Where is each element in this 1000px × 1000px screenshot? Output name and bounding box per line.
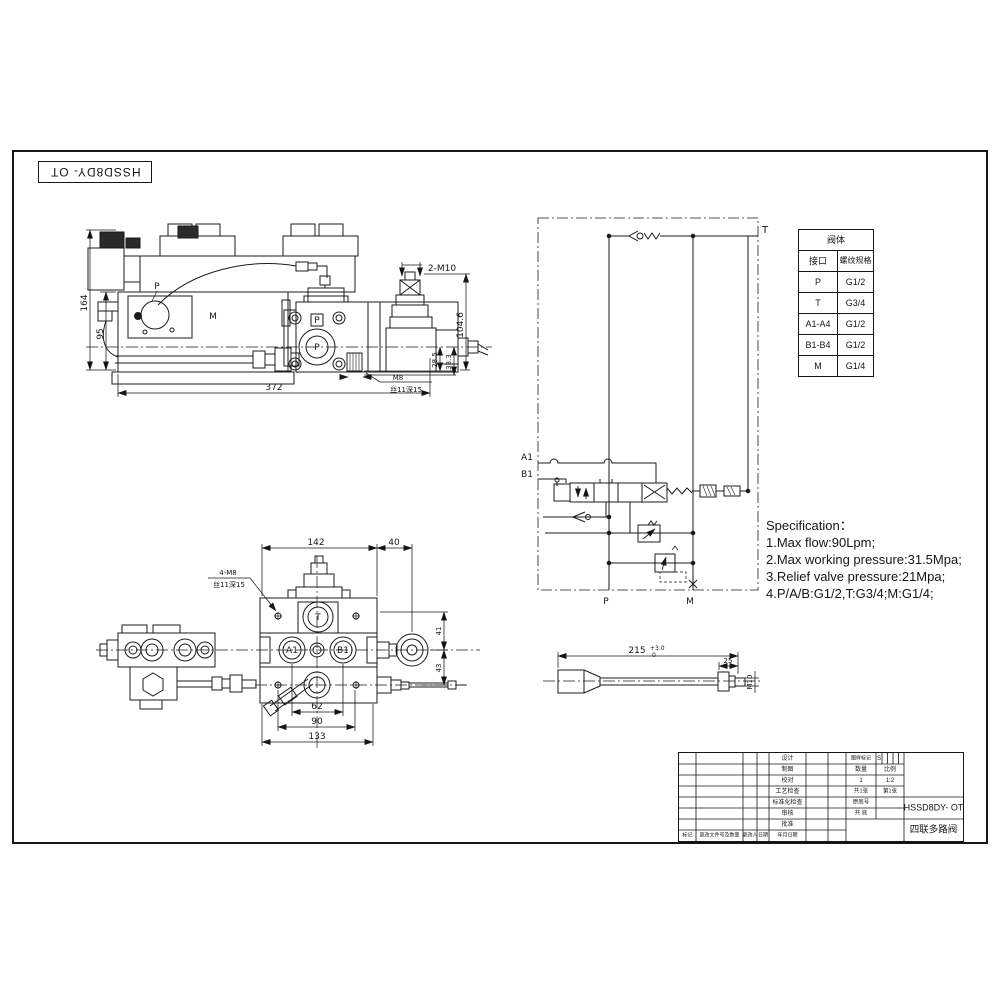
thread-table-header: 接口 螺纹规格 — [799, 250, 873, 271]
table-row: M G1/4 — [799, 355, 873, 376]
tb-scale-label: 比例 — [884, 767, 896, 773]
drawing-canvas: 164 95 372 104.6 28.5 33.3 2-M10 M8 丝11深… — [0, 0, 1000, 1000]
svg-text:2-M10: 2-M10 — [428, 264, 456, 274]
port-cell: B1-B4 — [799, 335, 838, 355]
tb-sheet-index: 第1张 — [883, 789, 897, 795]
spec-cell: G1/2 — [838, 314, 873, 334]
tb-label-approve: 批准 — [781, 822, 793, 828]
side-view-labels: 164 95 372 104.6 28.5 33.3 2-M10 M8 丝11深… — [80, 264, 466, 394]
table-row: B1-B4 G1/2 — [799, 334, 873, 355]
tb-label-mark: 标记 — [682, 833, 692, 838]
tb-orig-label: 原底号 — [853, 800, 870, 806]
tb-scale-value: 1:2 — [886, 778, 894, 784]
svg-text:104.6: 104.6 — [456, 312, 466, 338]
title-block: 设计 制图 校对 工艺检查 标准化检查 审核 批准 标记 更改文件号及数量 更改… — [678, 752, 964, 842]
svg-text:P: P — [314, 316, 320, 326]
svg-text:215: 215 — [628, 646, 645, 656]
svg-text:P: P — [603, 597, 609, 607]
svg-text:95: 95 — [96, 328, 106, 339]
svg-text:P: P — [314, 343, 320, 353]
tb-label-check: 校对 — [781, 778, 793, 784]
tb-label-standard: 标准化检查 — [772, 800, 802, 806]
tb-label-changer: 更改人 — [742, 833, 757, 838]
svg-text:T: T — [761, 225, 769, 236]
col-port-header: 接口 — [799, 251, 838, 271]
svg-text:M: M — [209, 312, 217, 322]
svg-text:142: 142 — [307, 538, 324, 548]
port-cell: A1-A4 — [799, 314, 838, 334]
spec-cell: G3/4 — [838, 293, 873, 313]
tb-part-number: HSSD8DY- OT — [904, 804, 964, 813]
spec-cell: G1/4 — [838, 356, 873, 376]
spec-title: Specification： — [766, 517, 992, 534]
tb-label-review: 审核 — [781, 811, 793, 817]
schematic-port-labels: T A1 B1 P M — [521, 225, 769, 607]
tb-sheets-total: 共1张 — [854, 789, 868, 795]
spec-line: 3.Relief valve pressure:21Mpa; — [766, 568, 992, 585]
tb-label-date: 日期 — [758, 833, 768, 838]
spec-line: 2.Max working pressure:31.5Mpa; — [766, 551, 992, 568]
tb-part-name: 四联多路阀 — [910, 825, 958, 835]
svg-text:4-M8: 4-M8 — [219, 569, 236, 577]
table-row: A1-A4 G1/2 — [799, 313, 873, 334]
svg-text:M8: M8 — [393, 374, 404, 382]
svg-text:丝11深15: 丝11深15 — [390, 385, 422, 394]
svg-text:90: 90 — [311, 717, 323, 727]
port-cell: M — [799, 356, 838, 376]
port-cell: P — [799, 272, 838, 292]
svg-text:133: 133 — [308, 732, 325, 742]
tb-label-process: 工艺检查 — [775, 789, 799, 795]
tb-label-change: 更改文件号及数量 — [699, 833, 739, 838]
hydraulic-schematic — [538, 218, 758, 590]
svg-text:43: 43 — [435, 664, 443, 673]
thread-spec-table: 阀体 接口 螺纹规格 P G1/2 T G3/4 A1-A4 G1/2 B1-B… — [798, 229, 874, 377]
svg-text:P: P — [154, 282, 160, 292]
svg-text:0: 0 — [652, 652, 656, 659]
svg-text:+3.0: +3.0 — [650, 645, 665, 652]
svg-text:372: 372 — [265, 383, 282, 393]
spec-cell: G1/2 — [838, 272, 873, 292]
svg-text:28.5: 28.5 — [431, 352, 439, 368]
svg-text:M: M — [686, 597, 694, 607]
tb-qty-label: 数量 — [855, 767, 867, 773]
port-cell: T — [799, 293, 838, 313]
svg-text:33.3: 33.3 — [445, 354, 453, 370]
svg-text:164: 164 — [80, 294, 90, 311]
tb-stage-value: S — [877, 756, 881, 762]
tb-label-fulldate: 年月日期 — [777, 833, 797, 838]
spec-cell: G1/2 — [838, 335, 873, 355]
svg-text:A1: A1 — [286, 646, 298, 656]
svg-text:B1: B1 — [521, 470, 533, 480]
table-row: T G3/4 — [799, 292, 873, 313]
tb-archive-label: 共 底 — [855, 811, 868, 817]
specification-block: Specification： 1.Max flow:90Lpm; 2.Max w… — [766, 517, 992, 602]
spec-line: 1.Max flow:90Lpm; — [766, 534, 992, 551]
svg-text:M10: M10 — [746, 675, 754, 690]
spec-line: 4.P/A/B:G1/2,T:G3/4;M:G1/4; — [766, 585, 992, 602]
table-row: P G1/2 — [799, 271, 873, 292]
svg-text:丝11深15: 丝11深15 — [213, 580, 245, 589]
tb-stage-label: 图样标记 — [851, 756, 871, 761]
col-spec-header: 螺纹规格 — [838, 251, 873, 271]
svg-text:B1: B1 — [337, 646, 349, 656]
tb-label-draft: 制图 — [781, 767, 793, 773]
tb-qty-value: 1 — [859, 778, 862, 784]
svg-text:40: 40 — [388, 538, 400, 548]
svg-text:A1: A1 — [521, 453, 533, 463]
svg-text:25: 25 — [724, 657, 733, 665]
svg-text:T: T — [314, 613, 321, 623]
svg-text:41: 41 — [435, 627, 443, 636]
svg-text:62: 62 — [311, 702, 322, 712]
thread-table-title: 阀体 — [799, 230, 873, 250]
lever-drawing — [543, 670, 762, 693]
tb-label-design: 设计 — [781, 756, 793, 762]
